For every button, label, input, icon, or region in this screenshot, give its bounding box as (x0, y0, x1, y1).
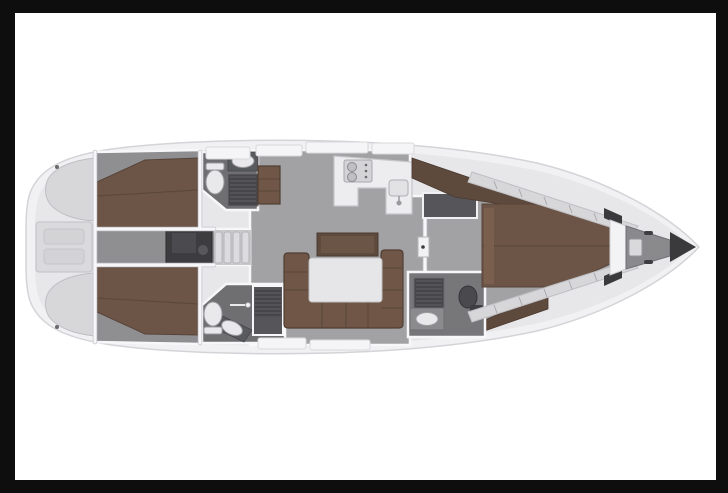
stern-cleat-starboard (55, 325, 59, 329)
forward-head-toilet (459, 286, 477, 308)
companionway-step-1 (215, 232, 222, 263)
stove-knob-3 (365, 176, 368, 179)
galley-faucet (397, 201, 402, 206)
transom-hatch-upper (44, 229, 84, 244)
locker-bottom-2 (310, 340, 370, 350)
island-berth-pillows (484, 208, 494, 284)
companionway-step-4 (242, 232, 249, 263)
locker-top-2 (256, 145, 302, 156)
head-aft-starboard-shower-slats (255, 288, 281, 318)
stove-burner-2 (348, 173, 357, 182)
locker-bottom-1 (258, 338, 306, 349)
shower-door-knob (246, 303, 251, 308)
galley-sink (389, 180, 408, 196)
salon-table (309, 258, 382, 302)
bow-bulkhead (610, 220, 626, 275)
bow-cleat-port (644, 231, 653, 235)
nav-seat (258, 166, 280, 204)
stove-knob-1 (365, 164, 368, 167)
companionway-step-2 (224, 232, 231, 263)
yacht-floor-plan (0, 0, 728, 493)
head-aft-port-toilet-tank (206, 163, 224, 170)
locker-top-1 (206, 147, 250, 159)
bow-cleat-starboard (644, 260, 653, 264)
stove-burner-1 (348, 163, 357, 172)
companionway-step-3 (233, 232, 240, 263)
head-aft-port-toilet (206, 170, 224, 194)
head-aft-starboard-toilet-tank (204, 327, 222, 334)
engine-pulley (198, 245, 208, 255)
forward-head (408, 272, 485, 337)
stove-knob-2 (365, 170, 368, 173)
screenshot-stage (0, 0, 728, 493)
head-aft-port-shower-slats (230, 176, 256, 204)
forward-head-shower-slats (416, 280, 442, 307)
locker-top-4 (372, 143, 414, 154)
stern-cleat-port (55, 165, 59, 169)
engine-detail (172, 233, 196, 253)
companionway-engine-room (166, 228, 251, 266)
transom-hatch-lower (44, 249, 84, 264)
locker-top-3 (306, 142, 368, 153)
forward-head-sink (416, 313, 438, 326)
door-handle (421, 245, 425, 249)
windlass (629, 239, 642, 256)
head-aft-starboard (202, 284, 285, 343)
head-aft-starboard-toilet (204, 302, 222, 326)
salon-sideboard-top (321, 236, 374, 253)
